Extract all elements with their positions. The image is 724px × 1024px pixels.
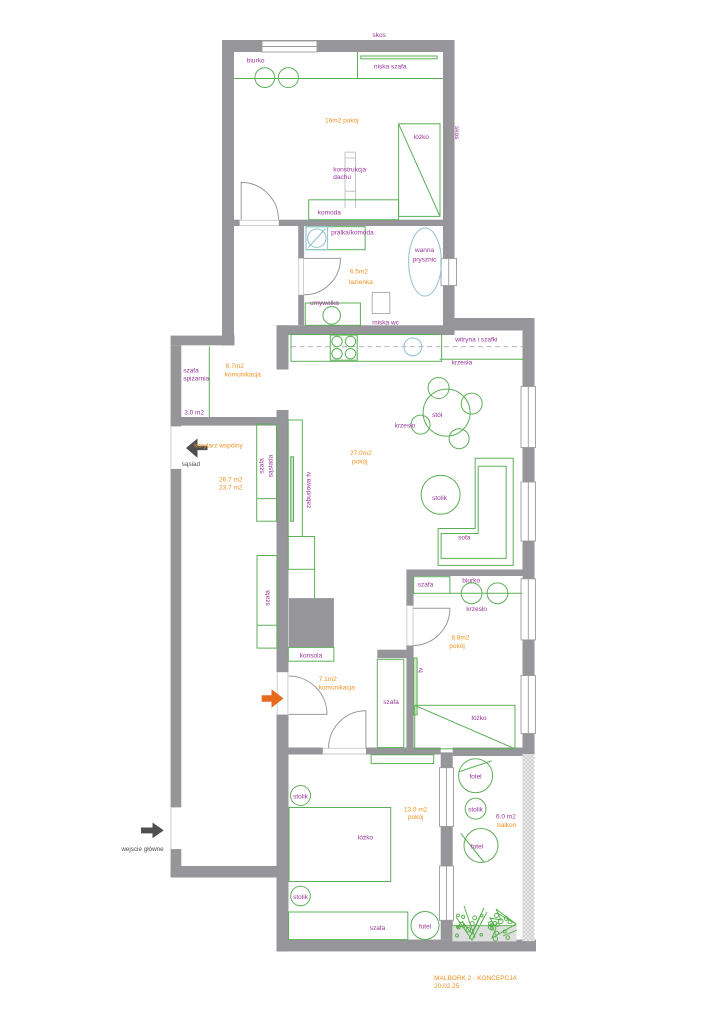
svg-text:pokój: pokój (408, 814, 424, 821)
svg-text:komunikacja: komunikacja (319, 685, 356, 692)
svg-text:miska wc: miska wc (372, 320, 399, 327)
svg-text:łazienka: łazienka (349, 279, 373, 286)
svg-text:dachu: dachu (333, 174, 351, 181)
svg-text:tv: tv (418, 667, 425, 673)
svg-text:szafa: szafa (418, 582, 434, 589)
svg-text:stolik: stolik (468, 807, 484, 814)
svg-text:komoda: komoda (318, 210, 342, 217)
svg-text:6.7m2: 6.7m2 (226, 363, 244, 370)
svg-text:6.5m2: 6.5m2 (350, 269, 368, 276)
svg-text:MALBORK 2 - KONCEPCJA: MALBORK 2 - KONCEPCJA (434, 975, 517, 982)
svg-text:fotel: fotel (419, 923, 432, 930)
svg-text:łóżko: łóżko (472, 715, 488, 722)
svg-text:szafa: szafa (183, 368, 199, 375)
svg-text:26.7 m2: 26.7 m2 (219, 477, 243, 484)
svg-text:umywalka: umywalka (310, 300, 339, 307)
svg-text:biurko: biurko (462, 578, 480, 585)
svg-text:7.1m2: 7.1m2 (319, 676, 337, 683)
svg-text:komunikacja: komunikacja (225, 371, 262, 378)
svg-text:konstrukcja: konstrukcja (333, 166, 366, 173)
svg-text:sofa: sofa (458, 534, 471, 541)
svg-text:fotel: fotel (469, 774, 482, 781)
svg-text:3.0 m2: 3.0 m2 (184, 410, 204, 417)
svg-text:pralka/komoda: pralka/komoda (331, 230, 374, 237)
svg-text:skos: skos (372, 32, 386, 39)
svg-text:23.7 m2: 23.7 m2 (219, 485, 243, 492)
svg-text:łóżko: łóżko (414, 134, 430, 141)
svg-text:szafa: szafa (259, 458, 266, 474)
svg-text:8.8m2: 8.8m2 (451, 635, 469, 642)
svg-text:wejscie główne: wejscie główne (120, 846, 164, 853)
svg-text:fotel: fotel (471, 844, 484, 851)
svg-text:13.0 m2: 13.0 m2 (404, 807, 428, 814)
svg-text:sąsiada: sąsiada (268, 454, 275, 477)
svg-text:20.02.25: 20.02.25 (434, 983, 460, 990)
svg-text:korytarz wspólny: korytarz wspólny (194, 442, 243, 449)
svg-text:pokój: pokój (352, 459, 368, 466)
svg-text:szafa: szafa (370, 925, 386, 932)
svg-text:wanna: wanna (414, 247, 435, 254)
svg-text:stolik: stolik (293, 894, 309, 901)
svg-text:balkon: balkon (497, 822, 517, 829)
svg-text:stolik: stolik (432, 495, 448, 502)
svg-text:zabudowa tv: zabudowa tv (306, 471, 313, 508)
svg-text:krzesła: krzesła (452, 360, 473, 367)
svg-text:niska szafa: niska szafa (374, 64, 407, 71)
svg-text:skos: skos (453, 126, 460, 140)
svg-text:witryna i szafki: witryna i szafki (454, 337, 497, 344)
svg-text:6.0 m2: 6.0 m2 (496, 814, 516, 821)
svg-text:krzesło: krzesło (466, 606, 487, 613)
svg-text:konsola: konsola (300, 653, 323, 660)
svg-text:spiżarnia: spiżarnia (183, 375, 209, 382)
svg-text:szafa: szafa (265, 590, 272, 606)
svg-text:16m2 pokój: 16m2 pokój (325, 117, 359, 124)
svg-text:łóżko: łóżko (358, 835, 374, 842)
svg-text:stolik: stolik (293, 793, 309, 800)
svg-text:27.0m2: 27.0m2 (350, 450, 372, 457)
svg-text:biurko: biurko (247, 58, 265, 65)
svg-text:szafa: szafa (383, 699, 399, 706)
svg-text:krzesło: krzesło (395, 423, 416, 430)
svg-text:prysznic: prysznic (413, 257, 438, 264)
svg-text:pokój: pokój (449, 643, 465, 650)
svg-text:stół: stół (432, 412, 443, 419)
svg-text:sąsiad: sąsiad (182, 461, 201, 468)
